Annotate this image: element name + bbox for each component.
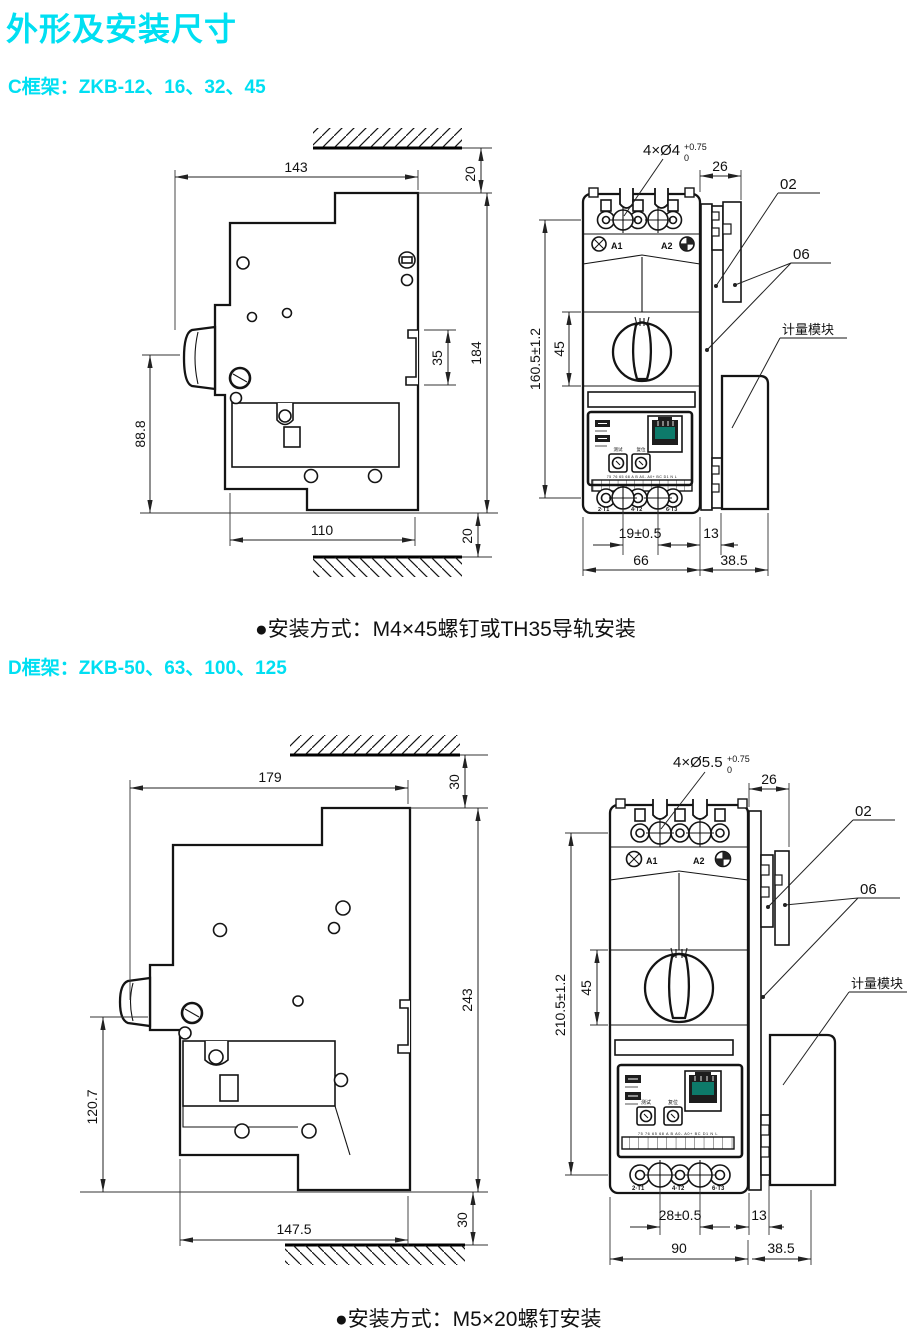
d-front-view-drawing: A1 A2 — [555, 735, 908, 1310]
wall-hatch-top — [313, 128, 492, 148]
svg-text:复位: 复位 — [637, 446, 646, 453]
breaker-front-body: A1 A2 — [610, 799, 748, 1193]
frame-d-heading: D框架：ZKB-50、63、100、125 — [8, 653, 287, 680]
svg-text:测试: 测试 — [614, 446, 623, 453]
svg-text:19±0.5: 19±0.5 — [619, 525, 662, 541]
svg-text:20: 20 — [462, 166, 478, 182]
dim-handle-height: 45 — [578, 950, 608, 1025]
dim-top-clearance: 30 — [410, 755, 488, 808]
terminal-strip-labels: 75 76 65 68 A B A0- A0+ BC D1 N L — [607, 475, 677, 479]
svg-text:06: 06 — [793, 246, 810, 263]
dim-overall-height: 160.5±1.2 — [527, 220, 581, 498]
svg-text:210.5±1.2: 210.5±1.2 — [552, 974, 568, 1036]
dim-top-clearance: 20 — [418, 148, 492, 193]
svg-text:复位: 复位 — [668, 1099, 678, 1106]
catalog-page: 外形及安装尺寸 C框架：ZKB-12、16、32、45 — [0, 0, 908, 1338]
dim-overall-height: 243 — [459, 808, 478, 1192]
dim-bottom-clearance: 30 — [454, 1192, 473, 1245]
frame-c-heading: C框架：ZKB-12、16、32、45 — [8, 72, 266, 99]
svg-text:+0.75: +0.75 — [684, 142, 707, 152]
svg-text:0: 0 — [684, 153, 689, 163]
svg-text:160.5±1.2: 160.5±1.2 — [527, 328, 543, 390]
svg-text:A1: A1 — [646, 856, 658, 866]
operating-knob — [120, 978, 150, 1026]
svg-text:A1: A1 — [611, 241, 623, 251]
ethernet-port — [648, 416, 682, 452]
dim-overall-height: 210.5±1.2 — [552, 833, 608, 1175]
breaker-side-body — [184, 193, 418, 510]
mounting-note-d: ●安装方式：M5×20螺钉安装 — [335, 1303, 601, 1333]
svg-text:90: 90 — [671, 1240, 687, 1256]
svg-text:45: 45 — [578, 980, 594, 996]
operating-knob — [184, 327, 215, 389]
svg-text:2·T1: 2·T1 — [632, 1186, 645, 1192]
terminal-strip-labels: 75 76 65 68 A B A0- A0+ BC D1 N L — [638, 1132, 718, 1136]
svg-text:计量模块: 计量模块 — [851, 976, 903, 991]
rear-mounting-plate — [749, 811, 835, 1190]
control-panel: 测试 复位 75 76 65 68 A B A0- A0+ BC D1 N L — [588, 412, 692, 491]
wall-hatch-bottom — [285, 1245, 488, 1265]
svg-text:110: 110 — [311, 522, 334, 538]
wall-hatch-bottom — [313, 557, 492, 577]
svg-text:20: 20 — [459, 528, 475, 544]
dim-front-height: 88.8 — [132, 355, 180, 513]
dim-bottom-clearance: 20 — [459, 513, 478, 557]
c-side-view-drawing: 143 20 184 35 88.8 110 — [130, 112, 520, 609]
svg-text:13: 13 — [751, 1207, 767, 1223]
svg-text:66: 66 — [633, 552, 649, 568]
svg-text:30: 30 — [446, 774, 462, 790]
svg-text:A2: A2 — [693, 856, 705, 866]
svg-text:38.5: 38.5 — [767, 1240, 794, 1256]
svg-text:30: 30 — [454, 1212, 470, 1228]
rear-mounting-plate — [701, 202, 768, 510]
dim-overall-height: 184 — [468, 193, 487, 513]
svg-text:143: 143 — [284, 159, 308, 175]
svg-text:120.7: 120.7 — [84, 1089, 100, 1124]
svg-text:28±0.5: 28±0.5 — [659, 1207, 702, 1223]
svg-text:4·T2: 4·T2 — [631, 507, 642, 513]
svg-text:0: 0 — [727, 765, 732, 775]
svg-text:2·T1: 2·T1 — [598, 507, 609, 513]
mounting-slot — [693, 799, 707, 819]
signal-terminal-strip — [622, 1137, 734, 1149]
svg-text:45: 45 — [551, 341, 567, 357]
svg-text:06: 06 — [860, 881, 877, 898]
dim-front-height: 120.7 — [84, 1017, 148, 1192]
svg-text:计量模块: 计量模块 — [782, 322, 834, 337]
svg-text:26: 26 — [712, 158, 728, 174]
dim-rail-depth: 13 — [690, 513, 738, 555]
svg-text:88.8: 88.8 — [132, 420, 148, 447]
svg-text:4×Ø4: 4×Ø4 — [643, 142, 680, 159]
ethernet-port — [685, 1071, 721, 1111]
wall-hatch-top — [290, 735, 488, 755]
d-side-view-drawing: 179 30 243 120.7 147.5 30 — [60, 700, 510, 1300]
mounting-note-c: ●安装方式：M4×45螺钉或TH35导轨安装 — [255, 613, 636, 643]
svg-text:4·T2: 4·T2 — [672, 1186, 685, 1192]
label-strip — [615, 1040, 733, 1055]
svg-text:184: 184 — [468, 341, 484, 365]
mounting-slot — [653, 799, 667, 819]
svg-text:测试: 测试 — [641, 1099, 651, 1106]
svg-text:26: 26 — [761, 771, 777, 787]
mounting-slot — [655, 188, 668, 208]
dim-handle-height: 45 — [551, 312, 581, 386]
dim-top-depth: 26 — [700, 158, 741, 200]
label-strip — [588, 392, 695, 407]
svg-text:A2: A2 — [661, 241, 673, 251]
page-title: 外形及安装尺寸 — [6, 4, 237, 50]
control-panel: 测试 复位 75 76 65 68 A B A0- A0+ BC D1 N L — [618, 1065, 742, 1157]
svg-text:4×Ø5.5: 4×Ø5.5 — [673, 754, 723, 771]
svg-text:+0.75: +0.75 — [727, 754, 750, 764]
svg-text:02: 02 — [780, 176, 797, 193]
svg-text:147.5: 147.5 — [276, 1221, 311, 1237]
svg-text:13: 13 — [703, 525, 719, 541]
dim-rail-notch: 35 — [424, 330, 456, 385]
metering-module-box — [722, 376, 768, 509]
side-inner-panel — [232, 403, 399, 467]
breaker-side-body — [120, 808, 410, 1190]
dim-terminal-pitch: 28±0.5 — [630, 1188, 730, 1235]
dim-terminal-pitch: 19±0.5 — [593, 509, 688, 555]
svg-text:6·T3: 6·T3 — [666, 507, 677, 513]
svg-text:243: 243 — [459, 988, 475, 1012]
svg-text:6·T3: 6·T3 — [712, 1186, 725, 1192]
svg-text:35: 35 — [429, 350, 445, 366]
svg-text:38.5: 38.5 — [720, 552, 747, 568]
svg-text:179: 179 — [258, 769, 282, 785]
breaker-front-body: A1 A2 — [583, 188, 700, 513]
svg-text:02: 02 — [855, 803, 872, 820]
c-front-view-drawing: A1 A2 — [535, 128, 908, 610]
